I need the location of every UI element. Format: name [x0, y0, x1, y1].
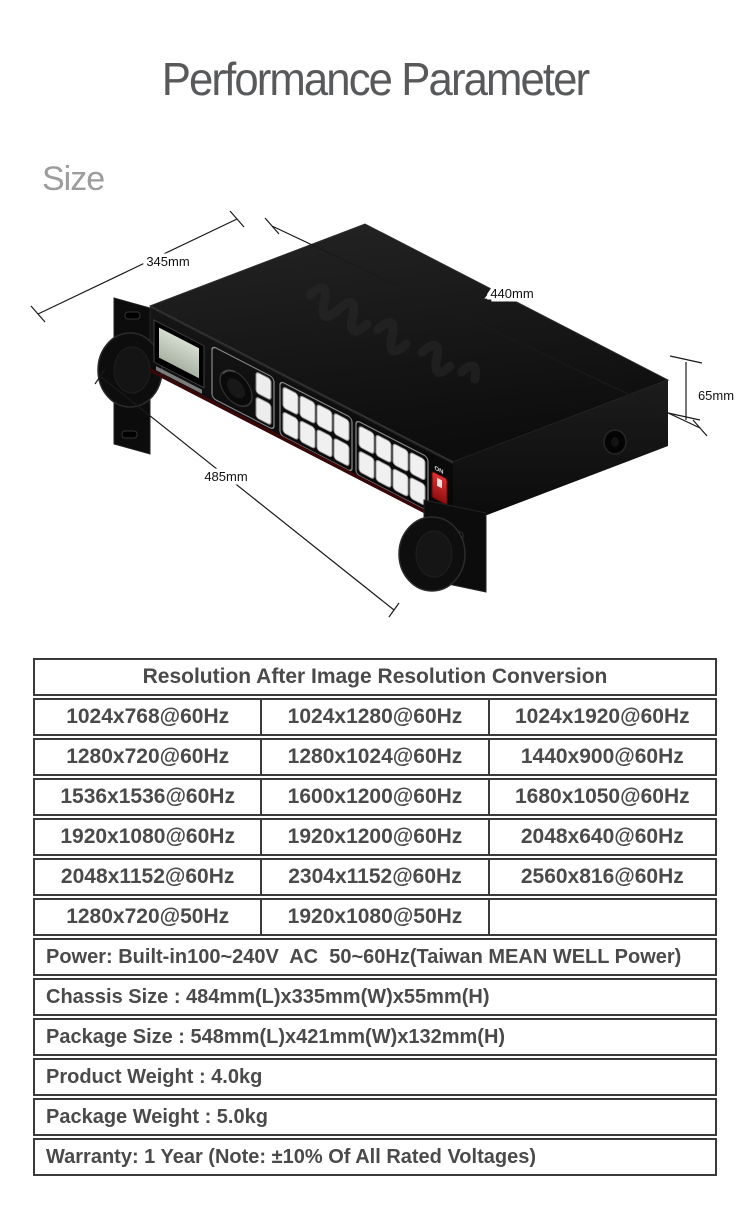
table-cell: [488, 900, 715, 934]
table-cell: 2048x1152@60Hz: [35, 860, 260, 894]
dim-depth-label: 345mm: [146, 254, 189, 269]
table-row: 1920x1080@60Hz 1920x1200@60Hz 2048x640@6…: [33, 818, 717, 856]
spec-row-warranty: Warranty: 1 Year (Note: ±10% Of All Rate…: [33, 1138, 717, 1176]
table-cell: 2304x1152@60Hz: [260, 860, 487, 894]
table-row: 1280x720@50Hz 1920x1080@50Hz: [33, 898, 717, 936]
device-illustration: ON 345mm 440mm: [0, 210, 750, 650]
table-cell: 2560x816@60Hz: [488, 860, 715, 894]
table-cell: 1920x1080@50Hz: [260, 900, 487, 934]
handle-left-inner: [114, 347, 150, 393]
screw-slot: [122, 431, 137, 438]
table-row: 1536x1536@60Hz 1600x1200@60Hz 1680x1050@…: [33, 778, 717, 816]
table-header: Resolution After Image Resolution Conver…: [33, 658, 717, 696]
table-cell: 1680x1050@60Hz: [488, 780, 715, 814]
table-cell: 1920x1200@60Hz: [260, 820, 487, 854]
dim-height-label: 65mm: [698, 388, 734, 403]
dim-front-label: 485mm: [204, 469, 247, 484]
table-row: 1024x768@60Hz 1024x1280@60Hz 1024x1920@6…: [33, 698, 717, 736]
resolution-table: Resolution After Image Resolution Conver…: [33, 658, 717, 1176]
handle-right-inner: [416, 531, 452, 577]
spec-row-power: Power: Built-in100~240V AC 50~60Hz(Taiwa…: [33, 938, 717, 976]
table-cell: 1024x1280@60Hz: [260, 700, 487, 734]
table-row: 1280x720@60Hz 1280x1024@60Hz 1440x900@60…: [33, 738, 717, 776]
spec-row-package-weight: Package Weight : 5.0kg: [33, 1098, 717, 1136]
size-section-label: Size: [42, 160, 104, 199]
table-cell: 1024x768@60Hz: [35, 700, 260, 734]
dimension-height: 65mm: [668, 356, 734, 420]
table-cell: 1280x720@50Hz: [35, 900, 260, 934]
performance-parameter-page: Performance Parameter Size: [0, 0, 750, 1231]
table-cell: 1536x1536@60Hz: [35, 780, 260, 814]
side-connector-pin: [611, 437, 619, 447]
table-row: 2048x1152@60Hz 2304x1152@60Hz 2560x816@6…: [33, 858, 717, 896]
dim-width-label: 440mm: [490, 286, 533, 301]
table-cell: 1280x720@60Hz: [35, 740, 260, 774]
spec-row-product-weight: Product Weight : 4.0kg: [33, 1058, 717, 1096]
table-cell: 1440x900@60Hz: [488, 740, 715, 774]
spec-row-chassis-size: Chassis Size : 484mm(L)x335mm(W)x55mm(H): [33, 978, 717, 1016]
table-cell: 1920x1080@60Hz: [35, 820, 260, 854]
table-cell: 1280x1024@60Hz: [260, 740, 487, 774]
page-title: Performance Parameter: [19, 52, 732, 106]
table-cell: 2048x640@60Hz: [488, 820, 715, 854]
screw-slot: [125, 312, 140, 319]
table-cell: 1600x1200@60Hz: [260, 780, 487, 814]
table-cell: 1024x1920@60Hz: [488, 700, 715, 734]
spec-row-package-size: Package Size : 548mm(L)x421mm(W)x132mm(H…: [33, 1018, 717, 1056]
